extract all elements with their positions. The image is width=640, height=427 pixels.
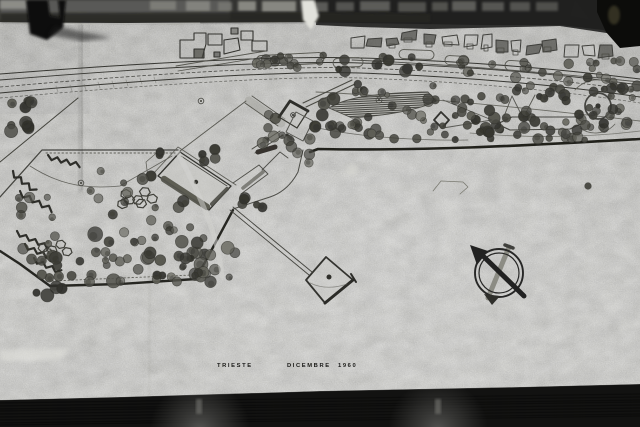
svg-text:1960: 1960 <box>338 363 357 369</box>
svg-text:DICEMBRE: DICEMBRE <box>287 363 331 369</box>
svg-text:TRIESTE: TRIESTE <box>217 363 253 369</box>
